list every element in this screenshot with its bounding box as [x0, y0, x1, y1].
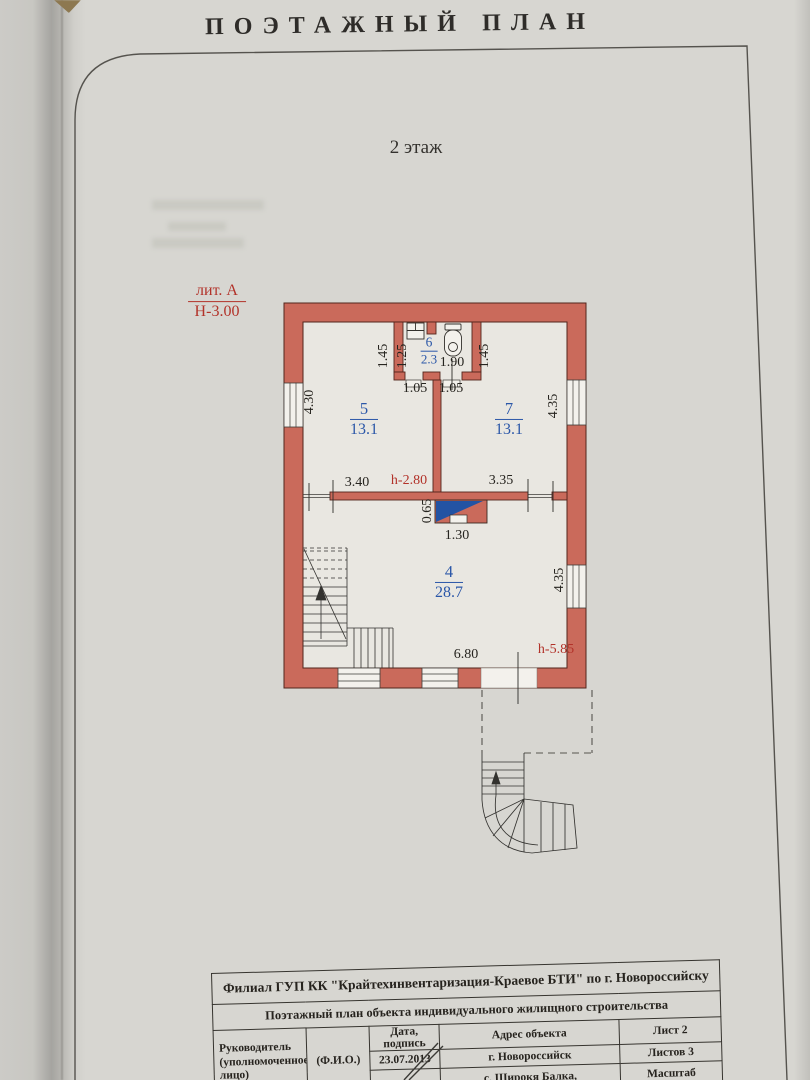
liter-block: лит. А Н-3.00 — [188, 282, 246, 322]
title-block: Филиал ГУП КК "Крайтехинвентаризация-Кра… — [211, 959, 723, 1080]
toilet-icon — [445, 324, 462, 356]
room-number: 5 — [350, 400, 378, 420]
signature-cell — [370, 1068, 441, 1080]
mid-wall-right — [552, 492, 567, 500]
mid-wall-openings — [303, 495, 552, 498]
exterior-stairs — [482, 753, 577, 853]
scale-label: Масштаб — [620, 1061, 723, 1080]
bleedthrough-mark — [152, 200, 264, 210]
bathroom-partition-stub — [427, 322, 436, 334]
room-label-7: 7 13.1 — [495, 400, 523, 438]
page-fold-shadow — [0, 0, 86, 1080]
dim-room4-width: 6.80 — [454, 647, 479, 663]
date-value: 23.07.2013 — [370, 1049, 440, 1070]
page-right-shadow — [794, 0, 810, 1080]
dim-left-wall: 4.30 — [302, 390, 318, 415]
dim-right-wall-bottom: 4.35 — [552, 568, 568, 593]
terrace-outline — [482, 690, 592, 753]
window-glazing-lines — [290, 380, 579, 681]
dim-bath-door-left: 1.05 — [403, 381, 428, 397]
room-area: 2.3 — [421, 351, 438, 366]
room-label-5: 5 13.1 — [350, 400, 378, 438]
dim-ceiling-height: h-2.80 — [391, 473, 427, 489]
room-area: 13.1 — [350, 420, 378, 438]
room-number: 4 — [435, 563, 463, 583]
dim-bath-door-right: 1.05 — [439, 381, 464, 397]
dim-bath-left-outer: 1.45 — [376, 344, 392, 369]
scanned-page: ПОЭТАЖНЫЙ ПЛАН 2 этаж лит. А Н-3.00 5 13… — [0, 0, 810, 1080]
liter-label: лит. А — [188, 282, 246, 302]
dim-room5-width: 3.40 — [345, 475, 370, 491]
bleedthrough-mark — [152, 238, 244, 248]
stair-cut-line — [304, 549, 346, 639]
chimney-blue-triangle — [436, 501, 483, 522]
fio-cell: (Ф.И.О.) — [306, 1026, 371, 1080]
dim-toilet-width: 1.90 — [440, 355, 465, 371]
room-label-4: 4 28.7 — [435, 563, 463, 601]
room-area: 28.7 — [435, 583, 463, 601]
room-number: 6 — [421, 336, 438, 352]
dim-room7-width: 3.35 — [489, 473, 514, 489]
dim-chimney-depth: 0.65 — [420, 499, 436, 524]
chimney-block — [435, 500, 487, 523]
dim-bath-right-outer: 1.45 — [477, 344, 493, 369]
dim-ridge-height: h-5.85 — [538, 642, 574, 658]
interior-stairs — [303, 548, 393, 668]
floorplan-drawing — [0, 0, 810, 1080]
page-fold-line — [61, 0, 63, 1080]
room-label-6: 6 2.3 — [421, 336, 438, 367]
leader-cell: Руководитель (уполномоченное лицо) — [213, 1028, 308, 1080]
sheet-number: Лист 2 — [619, 1017, 722, 1045]
floor-label: 2 этаж — [390, 137, 443, 159]
bleedthrough-mark — [168, 222, 226, 231]
building-height-label: Н-3.00 — [188, 303, 246, 322]
room-area: 13.1 — [495, 420, 523, 438]
room-number: 7 — [495, 400, 523, 420]
dim-chimney-width: 1.30 — [445, 528, 470, 544]
stair-fan-boundary — [482, 799, 577, 853]
stair-direction-arrow — [495, 778, 538, 845]
signature-stroke — [0, 0, 810, 1080]
dim-bath-left-inner: 1.25 — [395, 344, 411, 369]
title-block-table: Филиал ГУП КК "Крайтехинвентаризация-Кра… — [211, 959, 723, 1080]
page-title: ПОЭТАЖНЫЙ ПЛАН — [205, 9, 595, 41]
terrace-door-opening — [481, 668, 537, 688]
date-header: Дата, подпись — [369, 1024, 440, 1051]
dim-right-wall-top: 4.35 — [546, 394, 562, 419]
